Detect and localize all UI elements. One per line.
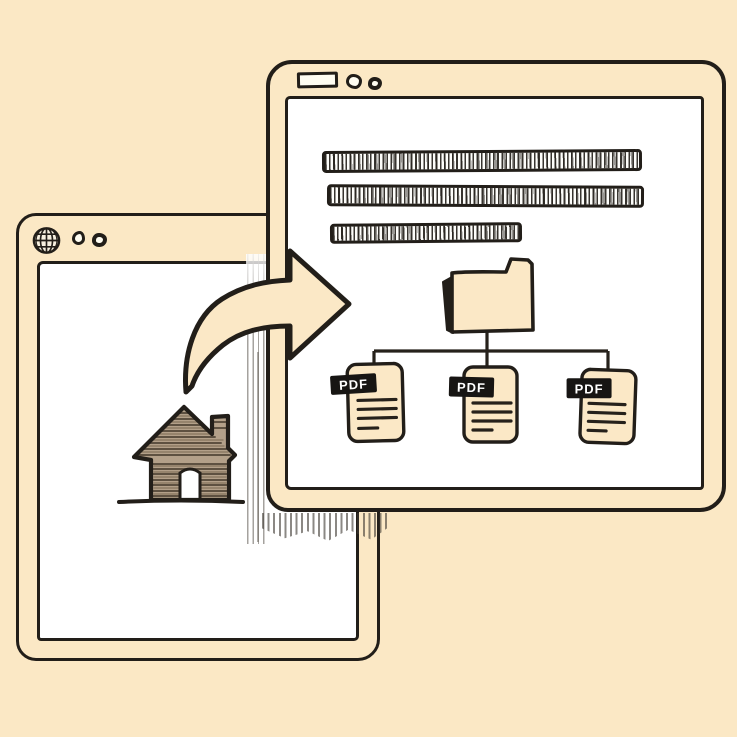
- pdf-document: PDF: [564, 369, 636, 444]
- pdf-label: PDF: [457, 380, 486, 396]
- hatched-text-line: [330, 222, 522, 244]
- pdf-badge: PDF: [449, 376, 495, 397]
- window-dot-icon: [368, 77, 382, 90]
- curved-right-arrow-icon: [178, 244, 358, 404]
- hatched-text-line: [322, 149, 642, 173]
- ground-line: [119, 501, 243, 503]
- pdf-document: PDF: [449, 367, 517, 442]
- house-icon: [111, 397, 256, 512]
- globe-icon: [31, 226, 62, 255]
- window-dot-icon: [72, 231, 85, 245]
- front-window-titlebar: [270, 64, 722, 96]
- illustration-canvas: PDF PDF: [0, 0, 737, 737]
- window-dot-icon: [346, 74, 362, 89]
- address-box-icon: [297, 72, 338, 89]
- pdf-label: PDF: [575, 381, 604, 396]
- window-dot-icon: [92, 233, 107, 247]
- folder-icon: [443, 259, 533, 333]
- folder-tree-diagram: PDF PDF: [330, 252, 648, 452]
- pdf-badge: PDF: [567, 378, 612, 398]
- hatched-text-line: [327, 184, 644, 208]
